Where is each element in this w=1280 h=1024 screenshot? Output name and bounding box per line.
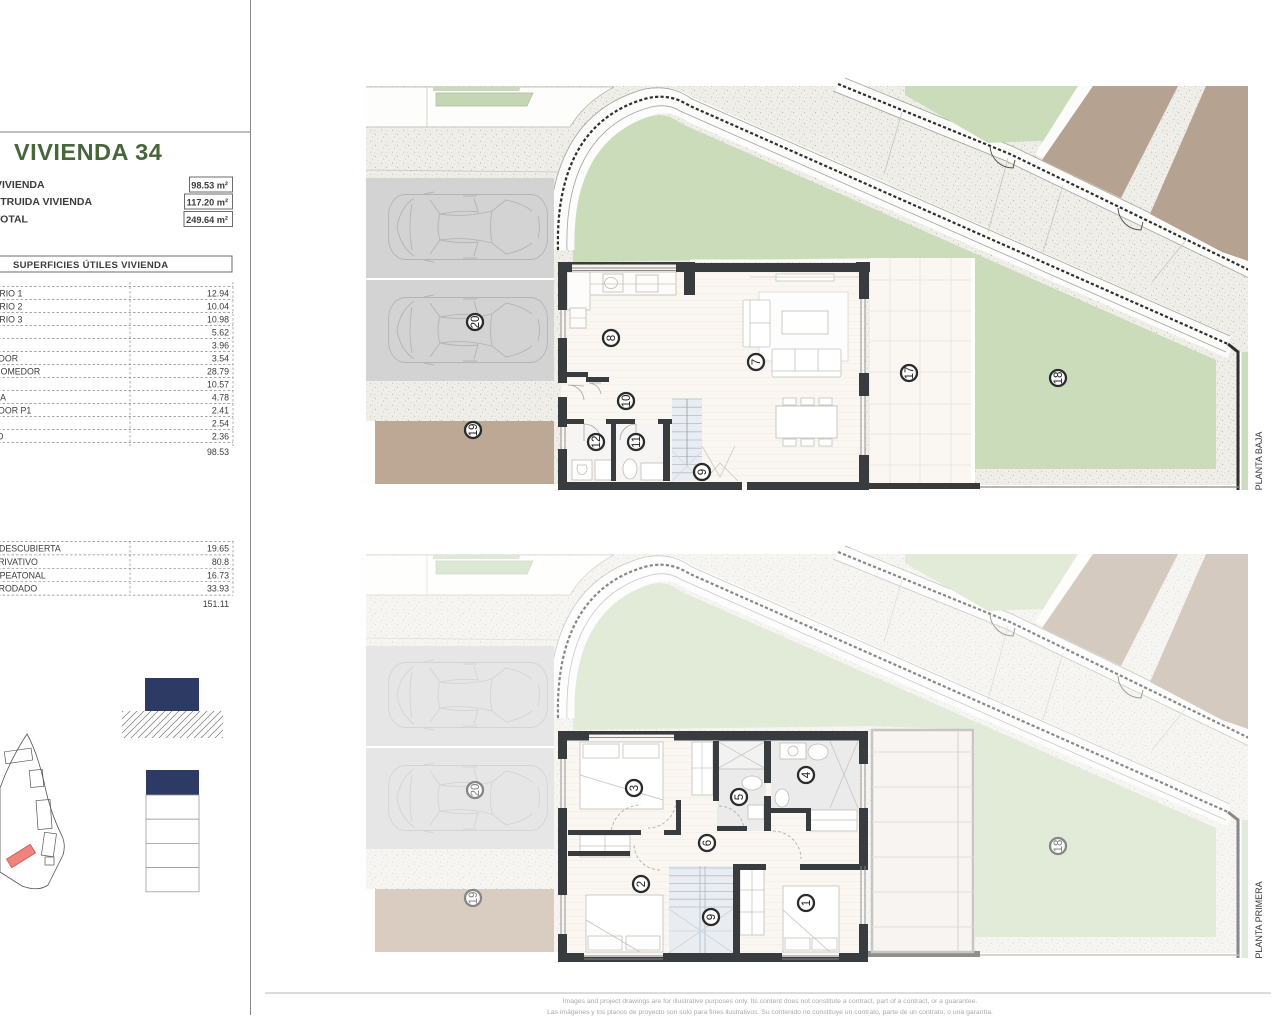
svg-text:DISTRIBUIDOR: DISTRIBUIDOR (0, 354, 18, 364)
svg-text:98.53: 98.53 (207, 447, 229, 457)
svg-text:PLANTA BAJA: PLANTA BAJA (1254, 432, 1264, 491)
svg-text:ACCESO RODADO: ACCESO RODADO (0, 584, 37, 594)
svg-text:151.11: 151.11 (203, 599, 229, 609)
svg-text:SUPERFICIES ÚTILES VIVIENDA: SUPERFICIES ÚTILES VIVIENDA (13, 259, 168, 271)
svg-text:98.53 m²: 98.53 m² (191, 181, 228, 191)
svg-text:4.78: 4.78 (212, 393, 229, 403)
svg-text:9: 9 (706, 914, 718, 920)
svg-text:JARDÍN PRIVATIVO: JARDÍN PRIVATIVO (0, 557, 38, 567)
svg-text:12: 12 (591, 436, 603, 449)
svg-text:7: 7 (751, 359, 763, 365)
svg-text:3.96: 3.96 (212, 341, 229, 351)
svg-text:DORMITORIO 1: DORMITORIO 1 (0, 289, 22, 299)
svg-text:19: 19 (468, 424, 480, 437)
svg-text:ACCESO PEATONAL: ACCESO PEATONAL (0, 570, 46, 580)
svg-text:17: 17 (904, 367, 916, 380)
svg-text:19.65: 19.65 (207, 544, 229, 554)
svg-text:SUPERFICIE CONSTRUIDA VIVIENDA: SUPERFICIE CONSTRUIDA VIVIENDA (0, 196, 92, 208)
svg-text:2.41: 2.41 (212, 406, 229, 416)
svg-text:2.36: 2.36 (212, 432, 229, 442)
svg-text:6: 6 (702, 840, 714, 846)
svg-text:16.73: 16.73 (207, 570, 229, 580)
svg-text:12.94: 12.94 (207, 289, 229, 299)
svg-text:DORMITORIO 3: DORMITORIO 3 (0, 315, 22, 325)
svg-text:DISTRIBUIDOR P1: DISTRIBUIDOR P1 (0, 406, 31, 416)
svg-text:20: 20 (470, 316, 482, 329)
svg-text:2.54: 2.54 (212, 419, 229, 429)
svg-text:33.93: 33.93 (207, 584, 229, 594)
svg-text:SALÓN COMEDOR: SALÓN COMEDOR (0, 367, 40, 377)
svg-text:18: 18 (1053, 372, 1065, 385)
svg-text:3: 3 (629, 785, 641, 791)
svg-text:Images and project drawings ar: Images and project drawings are for illu… (563, 998, 978, 1005)
svg-text:80.8: 80.8 (212, 557, 229, 567)
svg-text:5.62: 5.62 (212, 328, 229, 338)
svg-text:5: 5 (734, 794, 746, 800)
svg-text:ASEO: ASEO (0, 432, 4, 442)
svg-text:Las imágenes y los planos de p: Las imágenes y los planos de proyecto so… (547, 1009, 993, 1016)
svg-text:SUPERFICIE TOTAL: SUPERFICIE TOTAL (0, 214, 29, 226)
svg-text:1: 1 (801, 900, 813, 906)
svg-text:10: 10 (621, 395, 633, 408)
svg-text:2: 2 (636, 881, 648, 887)
svg-text:DORMITORIO 2: DORMITORIO 2 (0, 302, 22, 312)
svg-text:3.54: 3.54 (212, 354, 229, 364)
svg-text:8: 8 (606, 335, 618, 341)
svg-text:249.64 m²: 249.64 m² (186, 215, 228, 225)
svg-text:9: 9 (697, 469, 709, 475)
svg-text:4: 4 (801, 771, 813, 778)
svg-text:10.98: 10.98 (207, 315, 229, 325)
svg-text:VIVIENDA 34: VIVIENDA 34 (14, 139, 162, 165)
svg-text:TERRAZA DESCUBIERTA: TERRAZA DESCUBIERTA (0, 544, 61, 554)
svg-text:10.04: 10.04 (207, 302, 229, 312)
svg-text:ESCALERA: ESCALERA (0, 393, 6, 403)
svg-text:PLANTA PRIMERA: PLANTA PRIMERA (1254, 881, 1264, 958)
svg-text:11: 11 (631, 436, 643, 448)
svg-text:117.20 m²: 117.20 m² (187, 198, 228, 208)
svg-text:28.79: 28.79 (207, 367, 229, 377)
svg-text:10.57: 10.57 (207, 380, 229, 390)
svg-text:SUPERFICIE ÚTIL VIVIENDA: SUPERFICIE ÚTIL VIVIENDA (0, 178, 45, 191)
